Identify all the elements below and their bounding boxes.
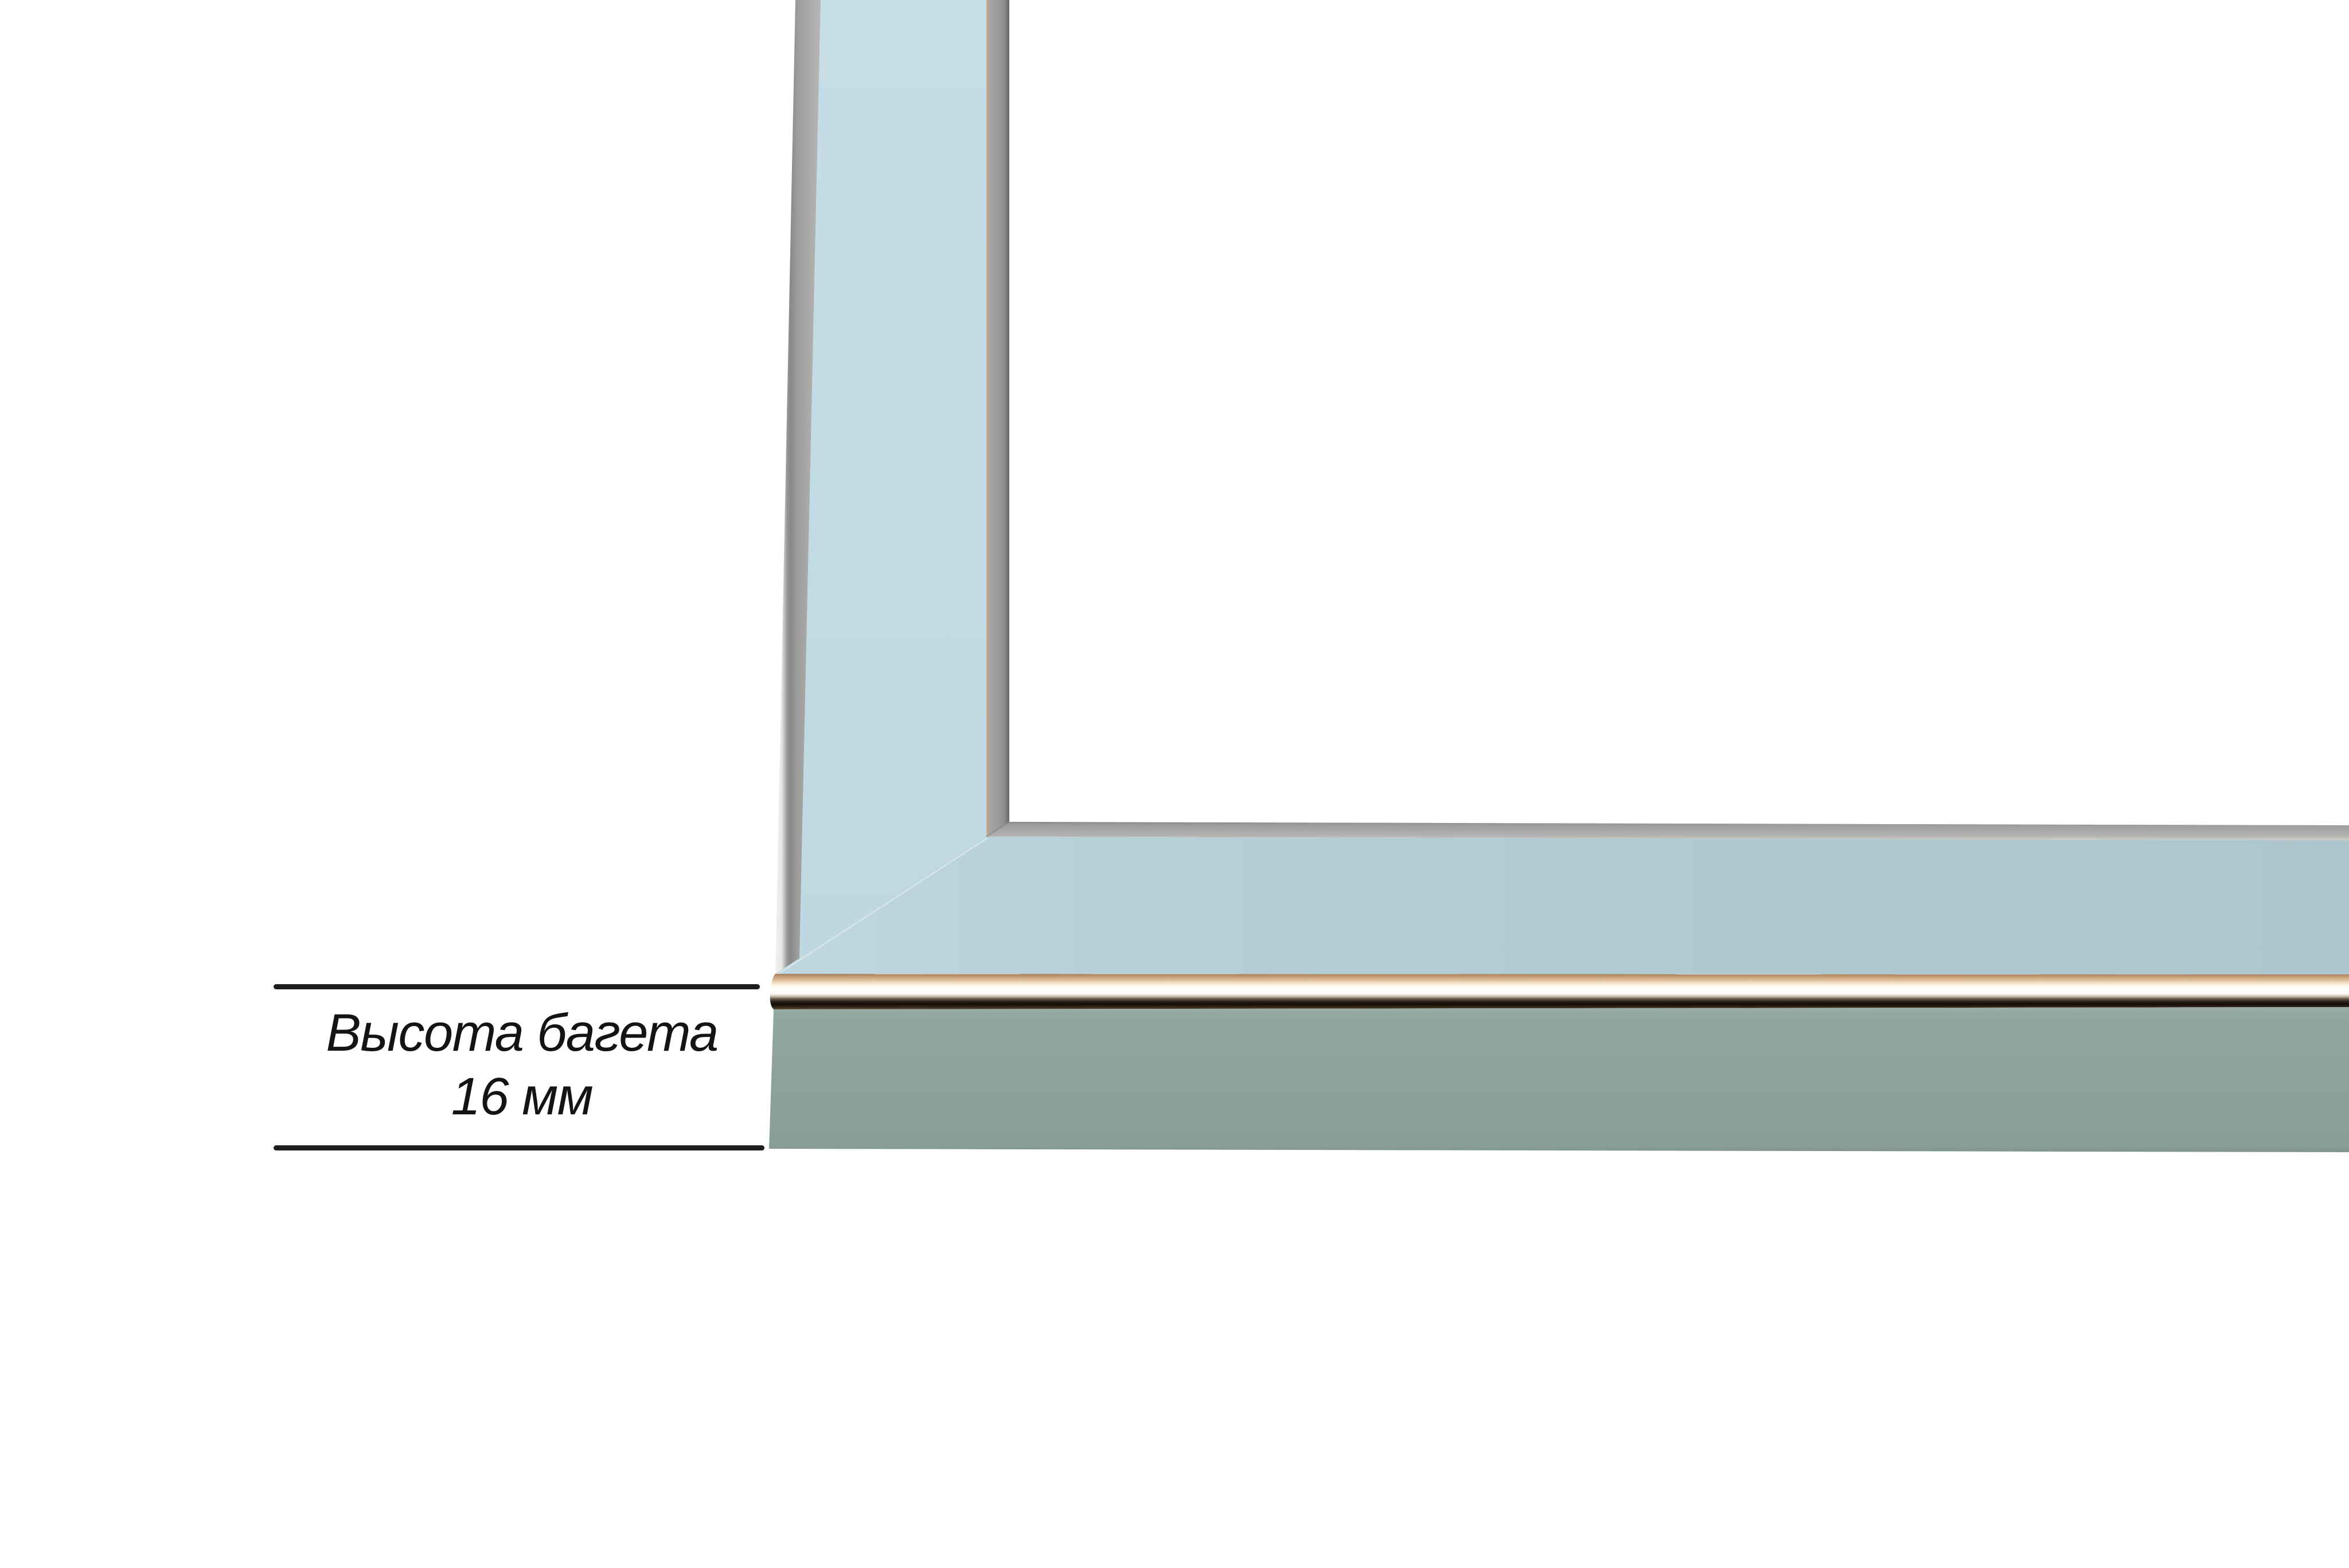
frame-vertical-top-face: [799, 0, 986, 958]
frame-chrome-bottom-edge: [770, 974, 2349, 1009]
frame-horizontal-top-face: [775, 837, 2349, 974]
dimension-label-value: 16 мм: [274, 1063, 770, 1130]
dimension-line-top: [274, 984, 760, 989]
frame-vertical-inner-silver-edge: [986, 0, 1009, 837]
product-photo-canvas: Высота багета 16 мм: [0, 0, 2349, 1568]
frame-side-face: [769, 1007, 2349, 1152]
dimension-label: Высота багета 16 мм: [274, 1003, 770, 1130]
frame-corner-illustration: [0, 0, 2349, 1568]
dimension-line-bottom: [274, 1145, 764, 1150]
dimension-label-title: Высота багета: [274, 1003, 770, 1063]
